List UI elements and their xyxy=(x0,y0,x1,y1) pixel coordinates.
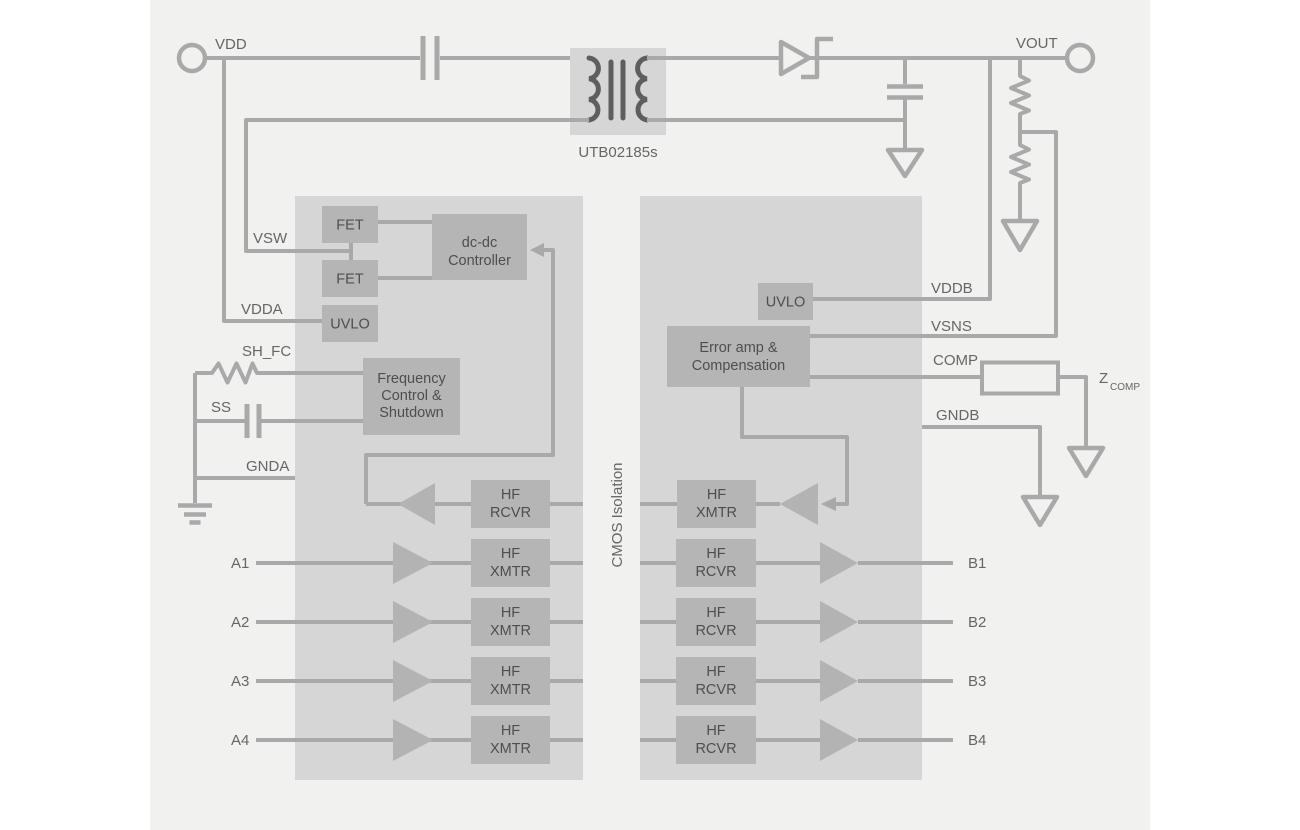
svg-text:HF: HF xyxy=(706,605,725,621)
svg-text:XMTR: XMTR xyxy=(490,623,531,639)
channel-a3-label: A3 xyxy=(231,673,249,690)
svg-text:HF: HF xyxy=(501,546,520,562)
svg-text:XMTR: XMTR xyxy=(490,682,531,698)
vout-terminal xyxy=(1067,45,1093,71)
svg-text:Control &: Control & xyxy=(381,388,442,404)
uvlo-right-block: UVLO xyxy=(758,283,813,320)
svg-text:HF: HF xyxy=(501,723,520,739)
uvlo-left-block: UVLO xyxy=(322,305,378,342)
schematic-canvas: VDD UTB02185s VSW VOUT xyxy=(0,0,1300,830)
zcomp-symbol: Z xyxy=(1099,370,1108,387)
channel-a4-label: A4 xyxy=(231,732,249,749)
svg-text:Frequency: Frequency xyxy=(377,371,446,387)
vdd-terminal xyxy=(179,45,205,71)
channel-b4-label: B4 xyxy=(968,732,986,749)
fet-top-block: FET xyxy=(322,206,378,243)
dcdc-controller-block: dc-dc Controller xyxy=(432,214,527,280)
svg-text:HF: HF xyxy=(501,664,520,680)
channel-b1-label: B1 xyxy=(968,555,986,572)
svg-text:XMTR: XMTR xyxy=(490,564,531,580)
gndb-label: GNDB xyxy=(936,407,979,424)
svg-text:HF: HF xyxy=(706,664,725,680)
transformer-part-label: UTB02185s xyxy=(578,144,657,161)
freq-control-block: Frequency Control & Shutdown xyxy=(363,358,460,435)
vsw-label: VSW xyxy=(253,230,288,247)
channel-b3-label: B3 xyxy=(968,673,986,690)
ss-label: SS xyxy=(211,399,231,416)
channel-b2-label: B2 xyxy=(968,614,986,631)
fet-top-label: FET xyxy=(336,218,364,234)
svg-text:RCVR: RCVR xyxy=(490,505,531,521)
channel-a2-label: A2 xyxy=(231,614,249,631)
vsns-label: VSNS xyxy=(931,318,972,335)
sh-fc-label: SH_FC xyxy=(242,343,291,360)
error-amp-block: Error amp & Compensation xyxy=(667,326,810,387)
fet-bottom-label: FET xyxy=(336,272,364,288)
svg-text:HF: HF xyxy=(706,723,725,739)
svg-text:Controller: Controller xyxy=(448,253,511,269)
svg-text:RCVR: RCVR xyxy=(695,682,736,698)
svg-text:XMTR: XMTR xyxy=(696,505,737,521)
vdd-label: VDD xyxy=(215,36,247,53)
cmos-isolation-label: CMOS Isolation xyxy=(609,462,626,567)
zcomp-subscript: COMP xyxy=(1110,382,1140,393)
fet-bottom-block: FET xyxy=(322,260,378,297)
svg-text:RCVR: RCVR xyxy=(695,564,736,580)
svg-text:HF: HF xyxy=(501,605,520,621)
transformer: UTB02185s xyxy=(570,48,666,161)
uvlo-left-label: UVLO xyxy=(330,317,370,333)
comp-label: COMP xyxy=(933,352,978,369)
svg-text:Error amp &: Error amp & xyxy=(699,340,777,356)
vdda-label: VDDA xyxy=(241,301,283,318)
svg-text:dc-dc: dc-dc xyxy=(462,235,497,251)
svg-text:RCVR: RCVR xyxy=(695,741,736,757)
svg-text:Compensation: Compensation xyxy=(692,358,786,374)
channel-a1-label: A1 xyxy=(231,555,249,572)
vout-label: VOUT xyxy=(1016,35,1058,52)
svg-text:RCVR: RCVR xyxy=(695,623,736,639)
svg-text:XMTR: XMTR xyxy=(490,741,531,757)
svg-text:HF: HF xyxy=(706,546,725,562)
vddb-label: VDDB xyxy=(931,280,973,297)
svg-text:HF: HF xyxy=(707,487,726,503)
svg-text:Shutdown: Shutdown xyxy=(379,405,444,421)
gnda-label: GNDA xyxy=(246,458,289,475)
svg-text:HF: HF xyxy=(501,487,520,503)
uvlo-right-label: UVLO xyxy=(766,295,806,311)
isolated-dcdc-schematic: VDD UTB02185s VSW VOUT xyxy=(0,0,1300,830)
